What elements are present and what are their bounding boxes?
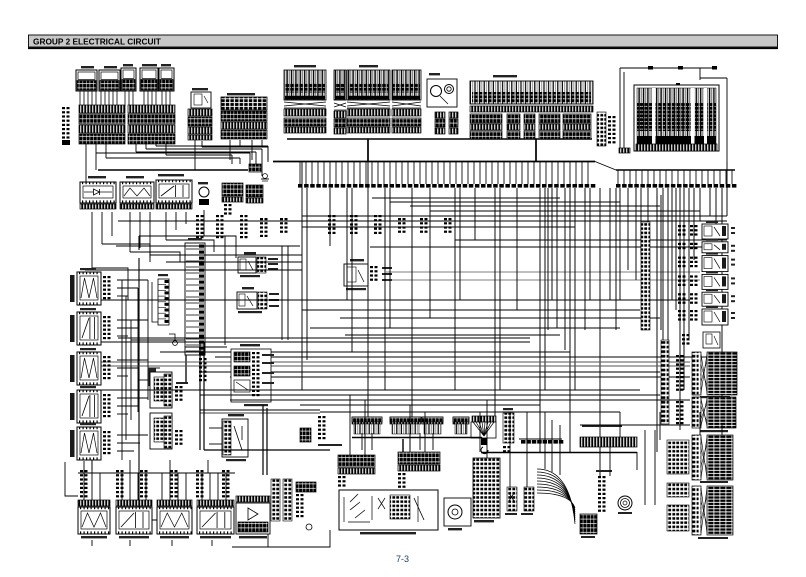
svg-text:7-3: 7-3 [396, 554, 409, 564]
svg-text:GROUP 2 ELECTRICAL CIRCUIT: GROUP 2 ELECTRICAL CIRCUIT [33, 37, 161, 47]
